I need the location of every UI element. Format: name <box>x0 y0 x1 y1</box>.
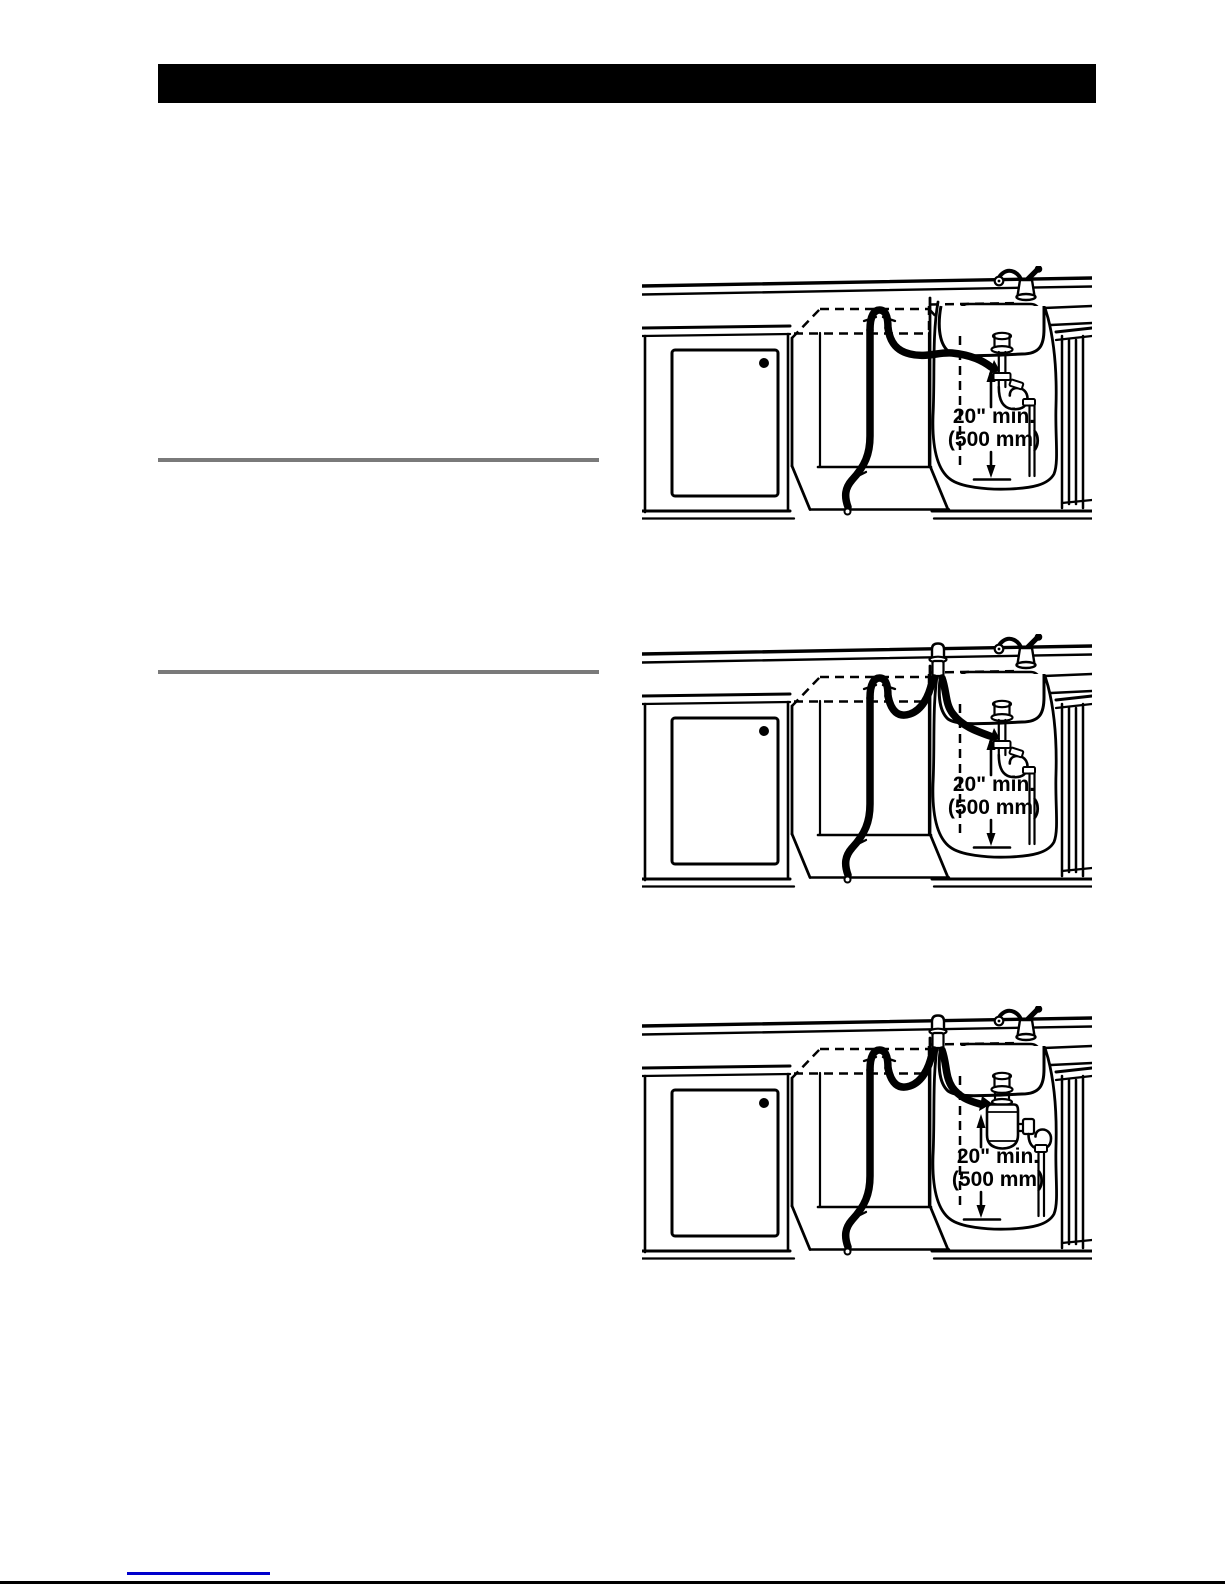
dimension-label-line1: 20" min. <box>957 1145 1039 1168</box>
figure-drain-hose-air-gap-sink: 20" min.(500 mm) <box>642 634 1092 892</box>
faucet-icon <box>995 266 1043 300</box>
cabinet-door <box>672 1090 778 1236</box>
figure-drain-hose-air-gap-disposer: 20" min.(500 mm) <box>642 1006 1092 1264</box>
footer-link-underline[interactable] <box>127 1572 270 1575</box>
door-knob <box>759 726 769 736</box>
drain-hose-direct-illustration: 20" min.(500 mm) <box>642 266 1092 524</box>
section-divider-1 <box>158 458 599 462</box>
left-cabinet <box>642 694 794 887</box>
air-gap-fitting <box>930 644 947 677</box>
left-cabinet <box>642 1066 794 1259</box>
dimension-label-line2: (500 mm) <box>948 428 1040 451</box>
page-bottom-rule <box>0 1581 1225 1584</box>
drain-hose-air-gap-sink-illustration: 20" min.(500 mm) <box>642 634 1092 892</box>
door-knob <box>759 358 769 368</box>
door-knob <box>759 1098 769 1108</box>
section-divider-2 <box>158 670 599 674</box>
faucet-icon <box>995 634 1043 668</box>
drain-hose-air-gap-disposer-illustration: 20" min.(500 mm) <box>642 1006 1092 1264</box>
dimension-label-line2: (500 mm) <box>952 1168 1044 1191</box>
dimension-label-line1: 20" min. <box>953 405 1035 428</box>
dimension-label-line1: 20" min. <box>953 773 1035 796</box>
figure-drain-hose-direct: 20" min.(500 mm) <box>642 266 1092 524</box>
dimension-label-line2: (500 mm) <box>948 796 1040 819</box>
faucet-icon <box>995 1006 1043 1040</box>
left-cabinet <box>642 326 794 519</box>
air-gap-fitting <box>930 1016 947 1049</box>
cabinet-door <box>672 718 778 864</box>
section-header-bar <box>158 64 1096 103</box>
manual-page: 20" min.(500 mm) 20" min.(500 mm) 20" mi… <box>0 0 1225 1585</box>
cabinet-door <box>672 350 778 496</box>
